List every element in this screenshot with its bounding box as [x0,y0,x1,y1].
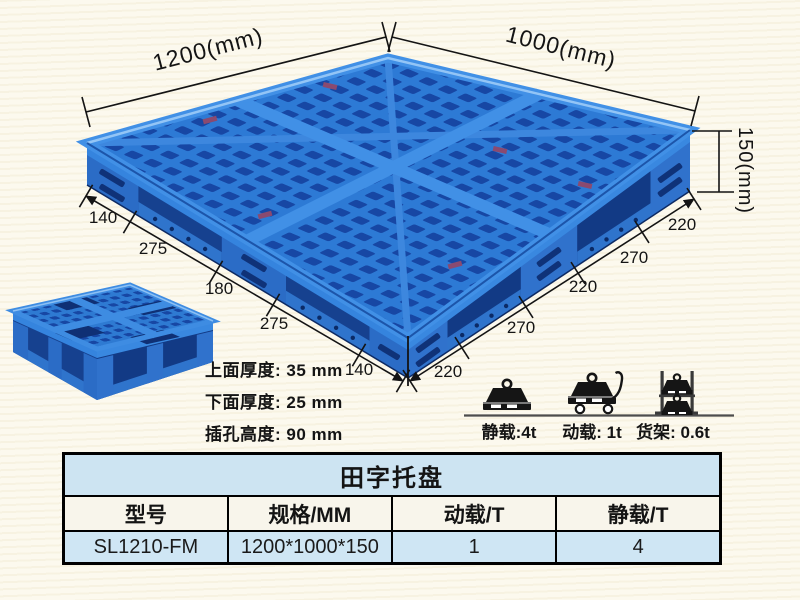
right-edge-dim-2: 220 [563,277,603,297]
spec-value-static-load: 4 [556,531,720,564]
right-edge-dim-3: 270 [614,248,654,268]
right-edge-dim-4: 220 [662,215,702,235]
left-edge-dim-4: 140 [339,360,379,380]
spec-value-dynamic-load: 1 [392,531,556,564]
spec-col-header-dynamic-load: 动载/T [392,496,556,531]
thickness-note-top: 上面厚度: 35 mm [205,356,343,381]
left-edge-dim-0: 140 [83,208,123,228]
spec-value-size: 1200*1000*150 [228,531,392,564]
product-spec-sheet: 1200(mm) 1000(mm) 150(mm) 140 275 180 27… [0,0,800,600]
load-rating-icons [464,371,734,416]
table-row: SL1210-FM 1200*1000*150 1 4 [64,531,721,564]
right-edge-dim-1: 270 [501,318,541,338]
dynamic-load-icon [568,372,622,413]
spec-table-title: 田字托盘 [64,454,721,497]
spec-col-header-model: 型号 [64,496,228,531]
spec-col-header-size: 规格/MM [228,496,392,531]
left-edge-dim-1: 275 [133,239,173,259]
pallet-underside-illustration [13,285,213,400]
right-edge-dim-0: 220 [428,362,468,382]
dim-label-height: 150(mm) [733,116,756,226]
rack-load-label: 货架: 0.6t [618,418,728,443]
rack-load-icon [655,371,698,415]
thickness-note-bottom: 下面厚度: 25 mm [205,388,343,413]
left-edge-dim-3: 275 [254,314,294,334]
thickness-note-fork-hole: 插孔高度: 90 mm [205,420,343,445]
spec-table: 田字托盘 型号 规格/MM 动载/T 静载/T SL1210-FM 1200*1… [62,452,722,565]
spec-value-model: SL1210-FM [64,531,228,564]
spec-col-header-static-load: 静载/T [556,496,720,531]
left-edge-dim-2: 180 [199,279,239,299]
static-load-icon [483,380,531,410]
